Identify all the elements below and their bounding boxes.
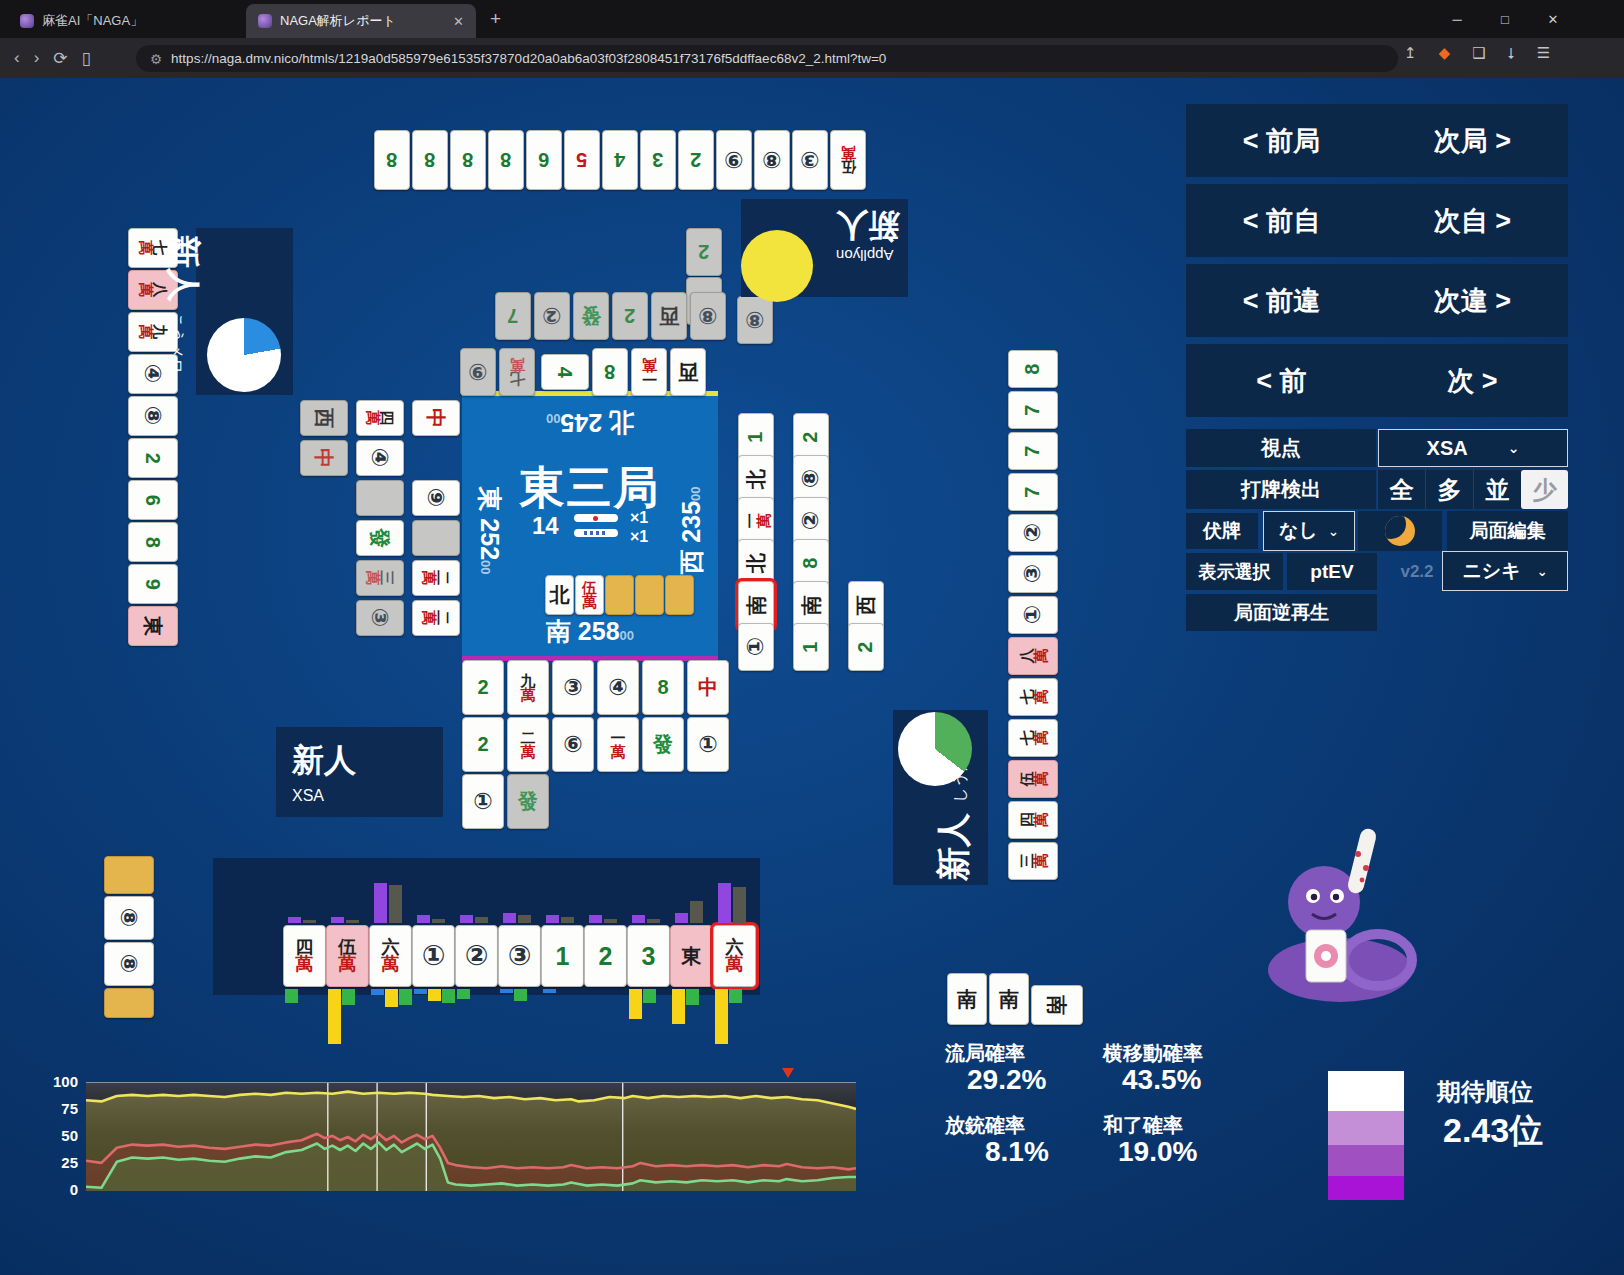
mahjong-tile: 8 — [1008, 350, 1058, 388]
tiles-remaining: 14 — [532, 512, 559, 540]
mahjong-tile: ③ — [356, 600, 404, 636]
mahjong-tile — [104, 988, 154, 1018]
prev-button[interactable]: < 前 — [1256, 363, 1306, 399]
alt-choice-bar — [518, 915, 531, 923]
moon-icon — [1385, 516, 1415, 546]
prev-button[interactable]: < 前自 — [1243, 203, 1320, 239]
mahjong-tile: 四萬 — [1008, 801, 1058, 839]
mahjong-tile: 8 — [488, 130, 524, 190]
mahjong-tile: 發 — [507, 774, 549, 829]
y-axis-tick: 0 — [38, 1181, 78, 1198]
display-select-label: 表示選択 — [1186, 553, 1283, 590]
stat-value: 19.0% — [1118, 1136, 1197, 1168]
mahjong-tile: 6 — [128, 480, 178, 520]
alt-choice-bar — [690, 901, 703, 923]
alt-choice-bar — [733, 887, 746, 923]
danger-bar — [399, 989, 412, 1005]
mahjong-tile: ⑧ — [104, 896, 154, 940]
rank-pie-top — [741, 230, 813, 302]
hand-tile[interactable]: 六萬 — [713, 925, 756, 987]
danger-bar — [514, 989, 527, 1001]
mahjong-tile: 四萬 — [356, 400, 404, 436]
mahjong-tile: 9 — [128, 564, 178, 604]
mahjong-tile: 3 — [640, 130, 676, 190]
stat-value: 29.2% — [967, 1064, 1046, 1096]
hand-tile[interactable]: 六萬 — [369, 925, 412, 987]
hand-tile[interactable]: ② — [455, 925, 498, 987]
mahjong-tile: ③ — [552, 660, 594, 715]
mahjong-tile: 8 — [793, 539, 829, 587]
mahjong-tile: 7 — [1008, 391, 1058, 429]
y-axis-tick: 75 — [38, 1100, 78, 1117]
expected-rank-value: 2.43位 — [1443, 1108, 1543, 1154]
mahjong-tile — [605, 575, 634, 615]
alt-choice-bar — [389, 885, 402, 923]
mahjong-tile: ① — [687, 717, 729, 772]
mahjong-tile: 七萬 — [1008, 678, 1058, 716]
hand-tile[interactable]: 2 — [584, 925, 627, 987]
danger-bar — [500, 989, 513, 993]
dahai-option-全[interactable]: 全 — [1377, 470, 1425, 509]
hand-tile[interactable]: 四萬 — [283, 925, 326, 987]
player-box-bottom: 新人 XSA — [276, 727, 443, 817]
mahjong-tile: ⑧ — [128, 396, 178, 436]
naga-choice-bar — [331, 917, 344, 923]
mahjong-tile: 發 — [573, 292, 609, 340]
nav-button-row-2: < 前違次違 > — [1186, 264, 1568, 337]
viewpoint-select[interactable]: XSA ⌄ — [1378, 429, 1568, 467]
current-position-marker — [782, 1068, 794, 1078]
version-text: v2.2 — [1395, 553, 1439, 590]
mahjong-tile: 西 — [300, 400, 348, 436]
danger-bar — [385, 989, 398, 1007]
mahjong-tile: 5 — [564, 130, 600, 190]
mahjong-tile: ⑨ — [460, 348, 496, 396]
dahai-detect-label: 打牌検出 — [1186, 470, 1376, 509]
mahjong-tile: ② — [793, 497, 829, 545]
mahjong-tile: 2 — [678, 130, 714, 190]
stat-value: 43.5% — [1122, 1064, 1201, 1096]
mahjong-tile: 8 — [374, 130, 410, 190]
danger-bar — [457, 989, 470, 999]
hand-tile[interactable]: ① — [412, 925, 455, 987]
reverse-replay-button[interactable]: 局面逆再生 — [1186, 594, 1377, 631]
mahjong-tile: 八萬 — [1008, 637, 1058, 675]
mahjong-tile: 南 — [947, 973, 987, 1025]
alt-choice-bar — [647, 919, 660, 923]
y-axis-tick: 100 — [38, 1073, 78, 1090]
naga-choice-bar — [718, 883, 731, 923]
mahjong-tile: ⑨ — [412, 480, 460, 516]
mahjong-tile: 1 — [793, 623, 829, 671]
mahjong-tile: 2 — [686, 228, 722, 276]
mahjong-tile: 7 — [495, 292, 531, 340]
mahjong-tile: 8 — [412, 130, 448, 190]
mahjong-tile: ③ — [792, 130, 828, 190]
mahjong-tile: ⑧ — [793, 455, 829, 503]
skin-select[interactable]: ニシキ ⌄ — [1442, 551, 1568, 591]
mahjong-tile: 東 — [128, 606, 178, 646]
danger-bar — [428, 989, 441, 1001]
stat-label: 横移動確率 — [1103, 1040, 1203, 1067]
alt-choice-bar — [561, 917, 574, 923]
stat-value: 8.1% — [985, 1136, 1049, 1168]
mahjong-tile: 6 — [526, 130, 562, 190]
rank-probability-segment — [1328, 1111, 1404, 1145]
hand-tile[interactable]: ③ — [498, 925, 541, 987]
score-south: 南 25800 — [462, 615, 718, 648]
danger-bar — [686, 989, 699, 1005]
naga-choice-bar — [546, 915, 559, 923]
naga-mascot-icon — [1250, 810, 1430, 1010]
danger-bar — [414, 989, 427, 994]
mahjong-tile: 二萬 — [412, 600, 460, 636]
mahjong-tile — [356, 480, 404, 516]
stick-counts: ×1×1 — [630, 508, 648, 546]
mahjong-tile: 一萬 — [597, 717, 639, 772]
dahai-option-少[interactable]: 少 — [1521, 470, 1568, 509]
mahjong-tile: 8 — [450, 130, 486, 190]
mahjong-tile: 1 — [738, 413, 774, 461]
nav-button-row-1: < 前自次自 > — [1186, 184, 1568, 257]
alt-choice-bar — [303, 920, 316, 923]
mahjong-tile: 8 — [592, 348, 628, 396]
mahjong-tile: 二萬 — [507, 717, 549, 772]
rank-pie-right — [898, 712, 972, 786]
naga-choice-bar — [374, 883, 387, 923]
mahjong-tile: 三萬 — [356, 560, 404, 596]
hand-tile[interactable]: 東 — [670, 925, 713, 987]
next-button[interactable]: 次 > — [1447, 363, 1497, 399]
mahjong-tile: 2 — [848, 623, 884, 671]
mahjong-tile: 北 — [545, 575, 574, 615]
viewpoint-label: 視点 — [1186, 429, 1376, 467]
mahjong-tile: 4 — [602, 130, 638, 190]
mahjong-tile: 北 — [738, 455, 774, 503]
alt-choice-bar — [475, 917, 488, 923]
mahjong-tile: 8 — [128, 522, 178, 562]
mahjong-tile: ② — [1008, 514, 1058, 552]
game-board: < 前局次局 >< 前自次自 >< 前違次違 >< 前次 >視点XSA ⌄打牌検… — [0, 0, 1624, 1275]
next-button[interactable]: 次違 > — [1434, 283, 1511, 319]
danger-bar — [342, 989, 355, 1005]
chevron-down-icon: ⌄ — [1508, 440, 1520, 456]
mahjong-tile: ⑥ — [552, 717, 594, 772]
mahjong-tile: ④ — [597, 660, 639, 715]
rank-probability-segment — [1328, 1071, 1404, 1111]
danger-bar — [729, 989, 742, 1003]
mahjong-tile: 中 — [412, 400, 460, 436]
chevron-down-icon: ⌄ — [1537, 564, 1548, 579]
mahjong-tile: 北 — [738, 539, 774, 587]
danger-bar — [643, 989, 656, 1003]
mahjong-tile: 發 — [356, 520, 404, 556]
mahjong-tile: 九萬 — [507, 660, 549, 715]
stat-label: 和了確率 — [1103, 1112, 1183, 1139]
naga-choice-bar — [589, 915, 602, 923]
mahjong-tile: 南 — [1031, 985, 1083, 1025]
mahjong-tile: ⑧ — [754, 130, 790, 190]
prev-button[interactable]: < 前局 — [1243, 123, 1320, 159]
mahjong-tile: 8 — [642, 660, 684, 715]
riichi-stick-icon — [574, 514, 618, 522]
mahjong-tile: 2 — [128, 438, 178, 478]
dahai-option-多[interactable]: 多 — [1425, 470, 1473, 509]
mahjong-tile: ⑧ — [737, 296, 773, 344]
danger-bar — [285, 989, 298, 1003]
y-axis-tick: 25 — [38, 1154, 78, 1171]
mahjong-tile: ① — [1008, 596, 1058, 634]
danger-bar — [672, 989, 685, 1024]
mahjong-tile: ② — [534, 292, 570, 340]
player-name: Appllyon 新人 — [836, 203, 900, 264]
score-north: 北 24500 — [462, 406, 718, 439]
player-name: 新人 XSA — [292, 739, 356, 805]
mahjong-tile: 西 — [651, 292, 687, 340]
mahjong-tile: 七萬 — [499, 348, 535, 396]
mahjong-tile: 7 — [1008, 473, 1058, 511]
y-axis-tick: 50 — [38, 1127, 78, 1144]
prev-button[interactable]: < 前違 — [1243, 283, 1320, 319]
round-name: 東三局 — [462, 458, 718, 518]
mahjong-tile: 西 — [848, 581, 884, 629]
mahjong-tile — [635, 575, 664, 615]
mahjong-tile: 2 — [793, 413, 829, 461]
mahjong-tile: 南 — [989, 973, 1029, 1025]
rank-probability-segment — [1328, 1176, 1404, 1200]
mahjong-tile — [412, 520, 460, 556]
naga-choice-bar — [417, 915, 430, 923]
mahjong-tile — [104, 856, 154, 894]
mahjong-tile: 一萬 — [631, 348, 667, 396]
stat-label: 流局確率 — [945, 1040, 1025, 1067]
mahjong-tile: 三萬 — [1008, 842, 1058, 880]
danger-bar — [371, 989, 384, 995]
mahjong-tile: ⑧ — [104, 942, 154, 986]
board-edit-button[interactable]: 局面編集 — [1447, 511, 1568, 551]
mahjong-tile: 南 — [793, 581, 829, 629]
nav-button-row-3: < 前次 > — [1186, 344, 1568, 417]
next-button[interactable]: 次局 > — [1434, 123, 1511, 159]
mahjong-tile: 2 — [612, 292, 648, 340]
hand-tile[interactable]: 1 — [541, 925, 584, 987]
mahjong-tile: 伍萬 — [575, 575, 604, 615]
danger-bar — [442, 989, 455, 1003]
naga-choice-bar — [288, 917, 301, 923]
mahjong-tile: 一萬 — [738, 497, 774, 545]
mahjong-tile: ⑧ — [690, 292, 726, 340]
mahjong-tile: 南 — [738, 581, 774, 629]
mahjong-tile — [665, 575, 694, 615]
mahjong-tile: 伍萬 — [830, 130, 866, 190]
honba-stick-icon — [574, 529, 618, 537]
stat-label: 放銃確率 — [945, 1112, 1025, 1139]
expected-rank-label: 期待順位 — [1437, 1076, 1533, 1108]
danger-bar — [543, 989, 556, 993]
naga-choice-bar — [675, 913, 688, 923]
mahjong-tile: ⑨ — [716, 130, 752, 190]
alt-choice-bar — [346, 920, 359, 923]
mahjong-tile: 西 — [670, 348, 706, 396]
mahjong-tile: ④ — [356, 440, 404, 476]
rank-probability-segment — [1328, 1145, 1404, 1176]
nav-button-row-0: < 前局次局 > — [1186, 104, 1568, 177]
mahjong-tile: ① — [738, 623, 774, 671]
mahjong-tile: 中 — [300, 440, 348, 476]
danger-bar — [715, 989, 728, 1044]
fuhai-select[interactable]: なし ⌄ — [1263, 511, 1355, 551]
mahjong-tile: 4 — [541, 354, 589, 390]
naga-choice-bar — [632, 915, 645, 923]
mahjong-tile: 7 — [1008, 432, 1058, 470]
naga-choice-bar — [503, 913, 516, 923]
night-mode-button[interactable] — [1358, 511, 1442, 551]
alt-choice-bar — [604, 919, 617, 923]
rank-pie-left — [207, 318, 281, 392]
mahjong-tile: 七萬 — [1008, 719, 1058, 757]
mahjong-tile: ③ — [1008, 555, 1058, 593]
mahjong-tile: 伍萬 — [1008, 760, 1058, 798]
mahjong-tile: 中 — [687, 660, 729, 715]
mahjong-tile: 2 — [462, 717, 504, 772]
hand-tile[interactable]: 3 — [627, 925, 670, 987]
danger-bar — [328, 989, 341, 1044]
alt-choice-bar — [432, 919, 445, 923]
fuhai-label: 伏牌 — [1186, 513, 1258, 549]
naga-choice-bar — [460, 915, 473, 923]
player-name: 新人 こうメロ — [160, 234, 206, 374]
mahjong-tile: 2 — [462, 660, 504, 715]
next-button[interactable]: 次自 > — [1434, 203, 1511, 239]
ptev-button[interactable]: ptEV — [1287, 553, 1377, 590]
chevron-down-icon: ⌄ — [1328, 524, 1339, 539]
dahai-option-並[interactable]: 並 — [1473, 470, 1521, 509]
danger-bar — [629, 989, 642, 1019]
win-probability-chart — [86, 1082, 856, 1191]
mahjong-tile: 二萬 — [412, 560, 460, 596]
center-info-square: 北 24500東 25200西 23500南 25800東三局14×1×1 — [462, 396, 718, 656]
hand-tile[interactable]: 伍萬 — [326, 925, 369, 987]
mahjong-tile: 發 — [642, 717, 684, 772]
mahjong-tile: ① — [462, 774, 504, 829]
